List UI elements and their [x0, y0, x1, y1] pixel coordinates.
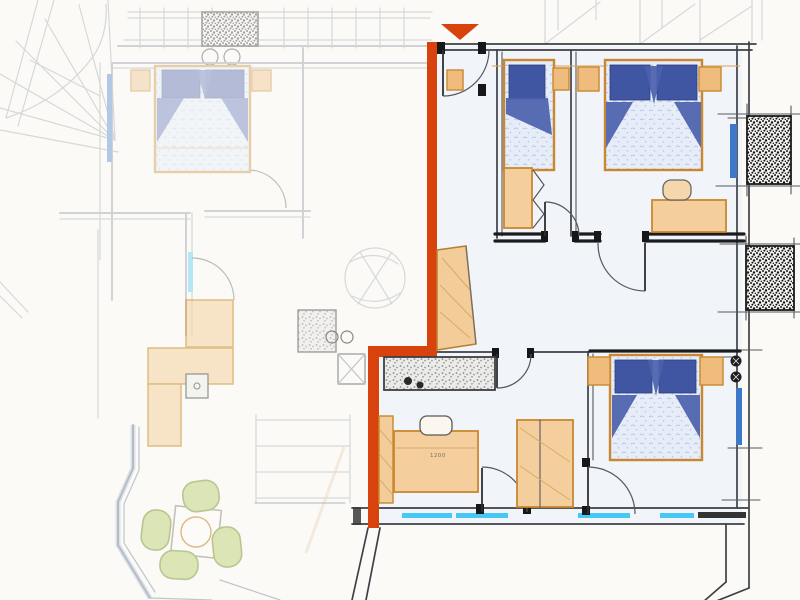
desk-1200: [394, 431, 478, 492]
hall-cabinet: [447, 70, 463, 90]
red-wall-vertical-upper: [427, 42, 437, 354]
bottom-wardrobe: [517, 420, 573, 507]
chair: [420, 416, 452, 435]
pillow: [509, 65, 545, 99]
planter-box: [746, 246, 794, 310]
dining-chair: [159, 550, 199, 581]
sink-drain: [404, 377, 412, 385]
nightstand: [699, 67, 721, 91]
nightstand: [578, 67, 599, 91]
stool: [663, 180, 691, 200]
wardrobe: [504, 168, 532, 228]
pillow: [610, 65, 650, 100]
floor-plan-canvas: 1200: [0, 0, 800, 600]
nightstand: [553, 68, 569, 90]
desk-dimension-label: 1200: [430, 453, 446, 459]
neighbor-bed-pillow: [162, 70, 200, 98]
dining-chair: [211, 526, 243, 569]
red-wall-vertical-lower: [368, 346, 379, 528]
nightstand: [588, 357, 610, 385]
sink: [186, 374, 208, 398]
window-band: [402, 513, 452, 518]
planter-box: [747, 116, 791, 184]
vanity-counter: [384, 357, 495, 390]
desk: [652, 200, 726, 232]
side-cabinet: [379, 416, 393, 503]
neighbor-window: [107, 74, 112, 162]
pillow: [615, 360, 652, 393]
floor-plan-page: 1200: [0, 0, 800, 600]
nightstand: [700, 357, 723, 385]
side-window: [730, 124, 737, 178]
